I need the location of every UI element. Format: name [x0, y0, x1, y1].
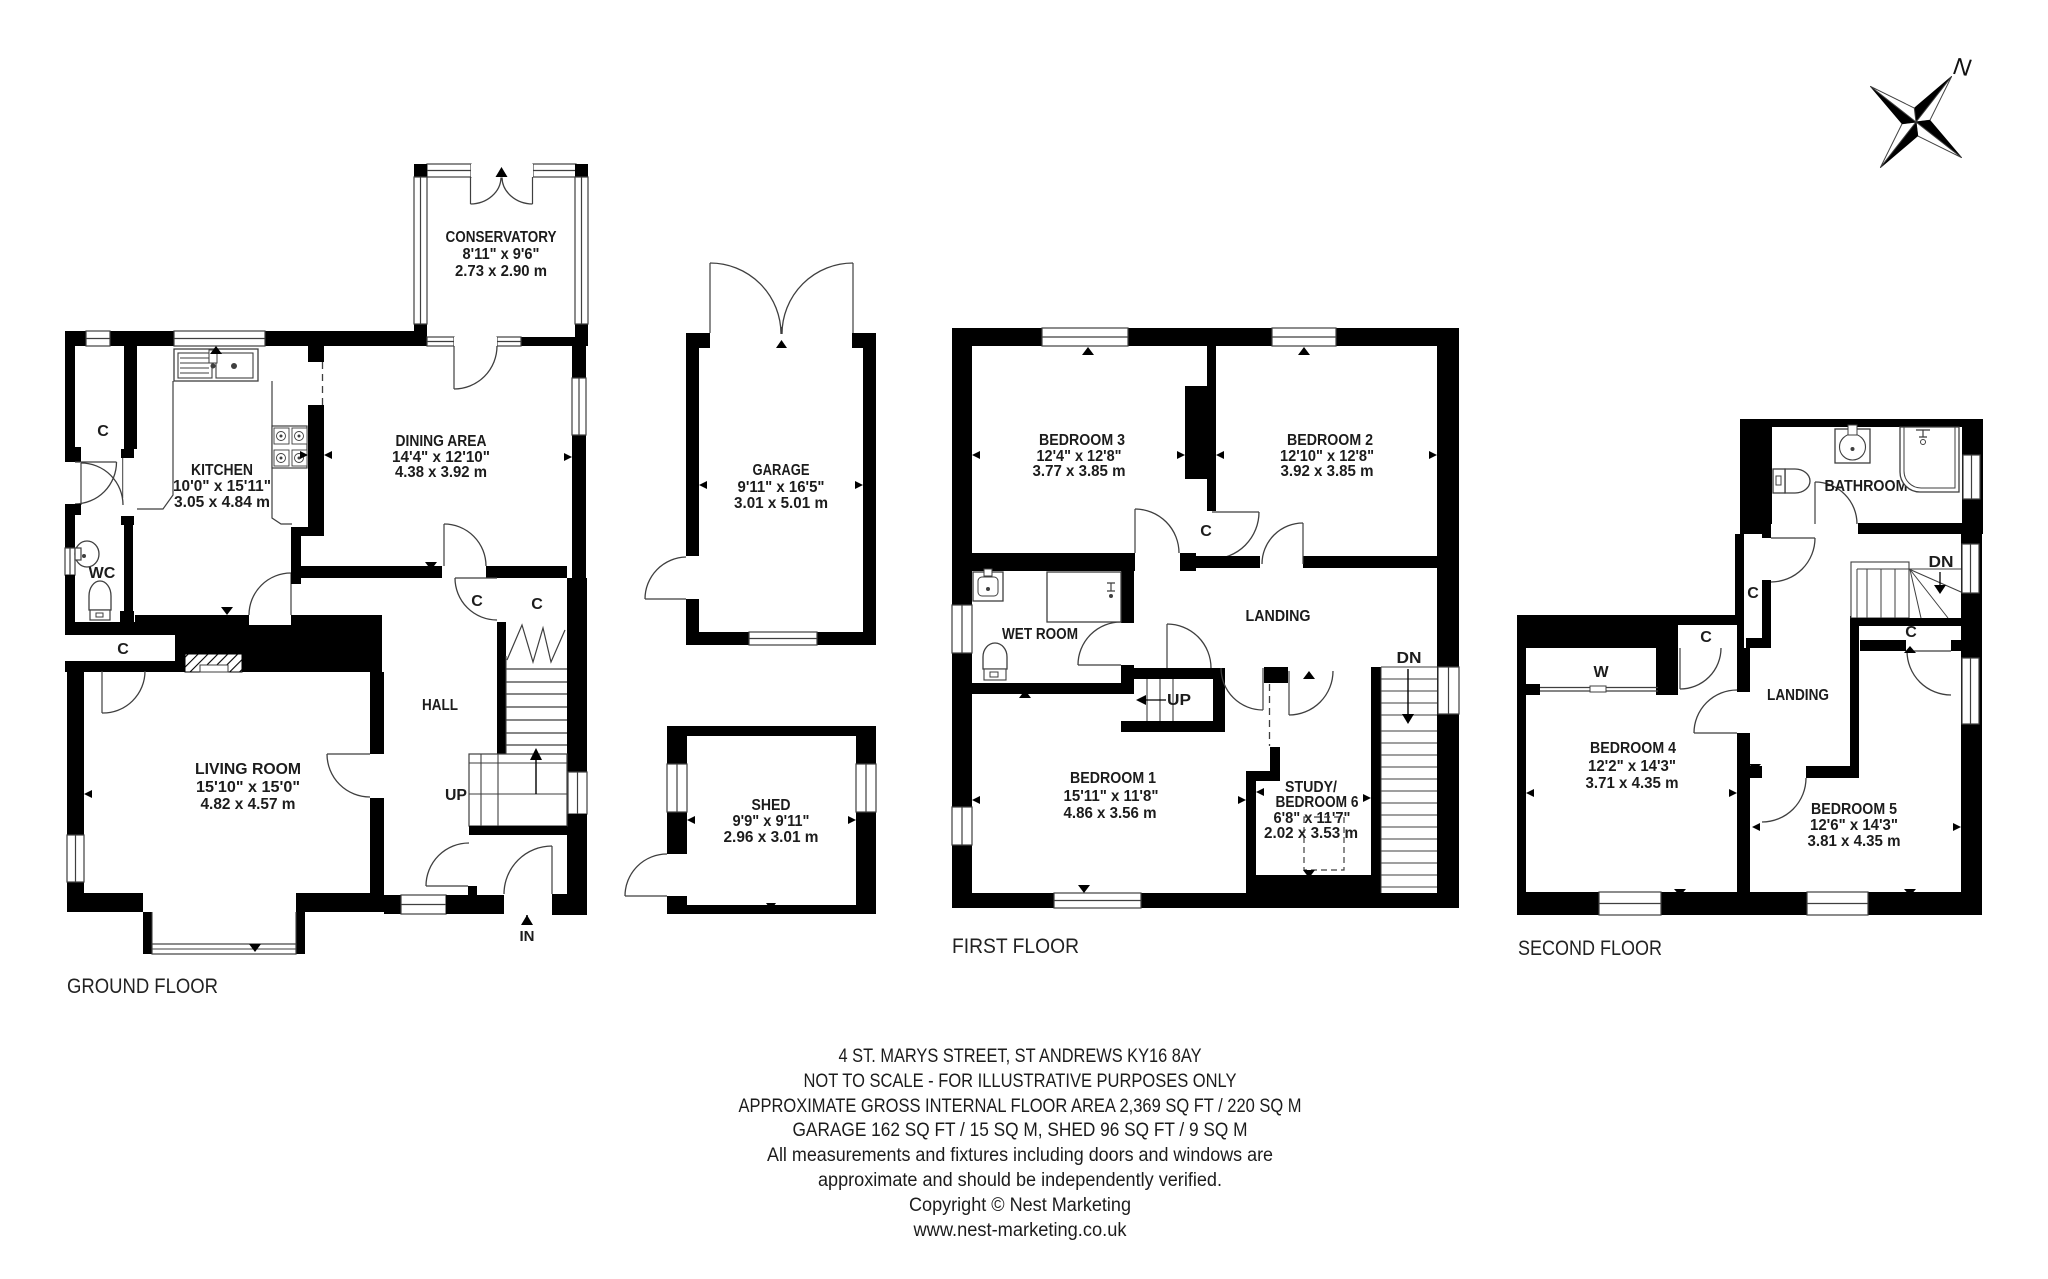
svg-text:15'11" x 11'8": 15'11" x 11'8": [1064, 788, 1159, 805]
svg-text:LANDING: LANDING: [1767, 687, 1829, 704]
svg-text:BEDROOM 2: BEDROOM 2: [1287, 432, 1373, 449]
svg-text:4.82 x 4.57 m: 4.82 x 4.57 m: [201, 796, 296, 813]
svg-text:3.81 x 4.35 m: 3.81 x 4.35 m: [1808, 833, 1901, 850]
svg-text:3.05 x 4.84 m: 3.05 x 4.84 m: [174, 494, 270, 511]
svg-text:WET ROOM: WET ROOM: [1002, 626, 1078, 643]
svg-text:C: C: [1700, 629, 1712, 646]
svg-text:FIRST FLOOR: FIRST FLOOR: [952, 935, 1079, 958]
svg-text:SECOND FLOOR: SECOND FLOOR: [1518, 937, 1662, 960]
svg-text:UP: UP: [1167, 692, 1191, 709]
svg-text:WC: WC: [89, 565, 116, 582]
svg-text:C: C: [1905, 624, 1917, 641]
svg-text:C: C: [1200, 523, 1212, 540]
svg-text:N: N: [1952, 53, 1974, 82]
svg-text:UP: UP: [445, 787, 467, 804]
svg-text:KITCHEN: KITCHEN: [191, 462, 253, 479]
svg-text:4.38 x 3.92 m: 4.38 x 3.92 m: [395, 464, 487, 481]
svg-text:BEDROOM 6: BEDROOM 6: [1276, 794, 1359, 811]
svg-text:BEDROOM 4: BEDROOM 4: [1590, 740, 1676, 757]
svg-text:2.96 x 3.01 m: 2.96 x 3.01 m: [724, 829, 819, 846]
svg-text:BEDROOM 5: BEDROOM 5: [1811, 801, 1897, 818]
svg-text:W: W: [1593, 664, 1609, 681]
svg-text:12'6" x 14'3": 12'6" x 14'3": [1810, 817, 1898, 834]
svg-text:GROUND FLOOR: GROUND FLOOR: [67, 975, 218, 998]
svg-text:SHED: SHED: [752, 797, 791, 814]
svg-text:GARAGE: GARAGE: [753, 462, 810, 479]
svg-text:3.01 x 5.01 m: 3.01 x 5.01 m: [734, 495, 828, 512]
svg-text:www.nest-marketing.co.uk: www.nest-marketing.co.uk: [913, 1220, 1127, 1241]
svg-text:IN: IN: [520, 928, 535, 945]
svg-text:15'10" x 15'0": 15'10" x 15'0": [196, 779, 300, 796]
svg-text:3.77 x 3.85 m: 3.77 x 3.85 m: [1033, 463, 1126, 480]
svg-text:DN: DN: [1929, 554, 1954, 571]
svg-text:Copyright © Nest Marketing: Copyright © Nest Marketing: [909, 1195, 1131, 1216]
svg-text:HALL: HALL: [422, 697, 458, 714]
svg-text:C: C: [97, 423, 109, 440]
svg-text:BEDROOM 3: BEDROOM 3: [1039, 432, 1125, 449]
svg-text:CONSERVATORY: CONSERVATORY: [446, 229, 557, 246]
svg-text:approximate and should be inde: approximate and should be independently …: [818, 1170, 1222, 1191]
svg-text:C: C: [117, 641, 129, 658]
svg-text:LIVING ROOM: LIVING ROOM: [195, 761, 301, 778]
svg-text:2.73 x 2.90 m: 2.73 x 2.90 m: [455, 263, 547, 280]
svg-text:12'2" x 14'3": 12'2" x 14'3": [1588, 758, 1676, 775]
svg-text:4.86 x 3.56 m: 4.86 x 3.56 m: [1064, 805, 1157, 822]
svg-text:3.71 x 4.35 m: 3.71 x 4.35 m: [1586, 775, 1679, 792]
svg-text:9'9" x 9'11": 9'9" x 9'11": [733, 813, 810, 830]
svg-text:10'0" x 15'11": 10'0" x 15'11": [173, 478, 271, 495]
svg-text:BATHROOM: BATHROOM: [1825, 478, 1908, 495]
svg-text:BEDROOM 1: BEDROOM 1: [1070, 770, 1156, 787]
svg-text:LANDING: LANDING: [1246, 608, 1311, 625]
svg-text:APPROXIMATE GROSS INTERNAL FLO: APPROXIMATE GROSS INTERNAL FLOOR AREA 2,…: [739, 1096, 1302, 1117]
svg-text:4 ST. MARYS STREET, ST ANDREWS: 4 ST. MARYS STREET, ST ANDREWS KY16 8AY: [839, 1046, 1202, 1067]
svg-text:3.92 x 3.85 m: 3.92 x 3.85 m: [1281, 463, 1374, 480]
svg-text:DN: DN: [1397, 650, 1422, 667]
svg-text:All measurements and fixtures: All measurements and fixtures including …: [767, 1145, 1273, 1166]
svg-text:C: C: [1747, 585, 1759, 602]
svg-text:8'11" x 9'6": 8'11" x 9'6": [463, 246, 540, 263]
svg-text:NOT TO SCALE - FOR ILLUSTRATIV: NOT TO SCALE - FOR ILLUSTRATIVE PURPOSES…: [804, 1071, 1237, 1092]
svg-text:GARAGE 162 SQ FT / 15 SQ M, SH: GARAGE 162 SQ FT / 15 SQ M, SHED 96 SQ F…: [793, 1120, 1248, 1141]
svg-text:DINING AREA: DINING AREA: [396, 433, 487, 450]
svg-text:9'11" x 16'5": 9'11" x 16'5": [738, 479, 825, 496]
svg-text:C: C: [531, 596, 543, 613]
svg-text:C: C: [471, 593, 483, 610]
